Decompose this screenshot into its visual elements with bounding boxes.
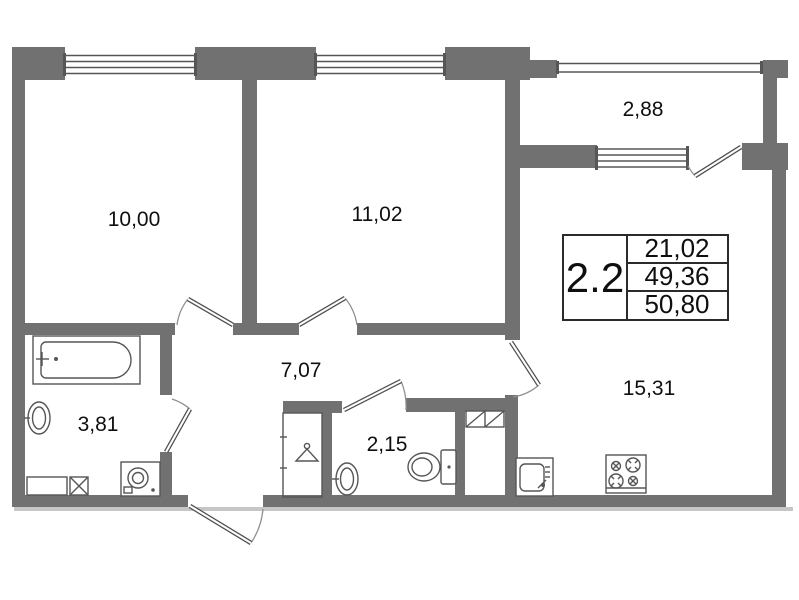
door-entrance — [190, 506, 263, 543]
interroom-wall — [242, 80, 257, 332]
apartment-type-label: 2.2 — [566, 254, 624, 301]
door-bedroom1 — [177, 299, 233, 325]
wardrobe-icon — [280, 413, 322, 497]
floor-plan-drawing: 10,00 11,02 2,88 7,07 3,81 2,15 15,31 2.… — [0, 0, 799, 600]
label-bedroom2-area: 11,02 — [352, 203, 403, 226]
label-balcony-area: 2,88 — [623, 98, 664, 121]
apartment-info-table: 2.2 21,02 49,36 50,80 — [563, 233, 728, 320]
top-pier-right — [445, 47, 530, 80]
window-balcony-door — [595, 146, 689, 170]
top-pier-left — [12, 47, 65, 80]
bathroom-hatch-icon — [70, 477, 88, 495]
balcony-bottom-wall-left — [507, 145, 597, 168]
door-living — [511, 342, 539, 397]
info-row-living-area: 21,02 — [644, 233, 709, 263]
label-wc-area: 2,15 — [367, 433, 408, 456]
vent-shaft-icon — [466, 411, 504, 427]
door-balcony — [688, 147, 741, 176]
kitchen-sink-icon — [516, 458, 553, 496]
right-outer-wall — [772, 170, 786, 507]
door-bathroom — [166, 399, 190, 452]
door-wc — [344, 381, 406, 410]
bathroom-right-wall-lower — [160, 452, 172, 497]
info-row-total-area: 50,80 — [644, 289, 709, 319]
hall-top-wall-c — [357, 323, 505, 335]
label-kitchen-living-area: 15,31 — [623, 377, 676, 400]
wall-shadow — [14, 507, 793, 511]
bathroom-sink-icon — [24, 402, 50, 434]
washing-machine-icon — [121, 462, 160, 496]
bathroom-cabinet-icon — [27, 477, 67, 495]
top-pier-middle — [195, 47, 316, 80]
floor-plan-canvas: 10,00 11,02 2,88 7,07 3,81 2,15 15,31 2.… — [0, 0, 799, 600]
wc-top-wall-left — [283, 401, 342, 413]
label-bedroom1-area: 10,00 — [108, 208, 161, 231]
window-bedroom2 — [314, 53, 446, 76]
toilet-icon — [408, 450, 456, 484]
balcony-corner-top-right — [763, 60, 788, 78]
info-row-apartment-area: 49,36 — [644, 261, 709, 291]
door-bedroom2 — [299, 298, 357, 325]
balcony-bottom-wall-right — [743, 145, 763, 168]
bottom-wall-right — [263, 495, 786, 507]
balcony-rail — [556, 61, 763, 74]
window-bedroom1 — [63, 53, 197, 76]
bathroom-right-wall-upper — [160, 331, 172, 395]
wc-left-wall — [322, 401, 332, 497]
bathtub-icon — [33, 336, 140, 384]
stove-icon — [606, 455, 646, 493]
label-hallway-area: 7,07 — [281, 359, 322, 382]
hall-top-wall-b — [233, 323, 299, 335]
label-bathroom-area: 3,81 — [78, 413, 119, 436]
hall-top-wall-a — [12, 323, 175, 335]
left-outer-wall — [12, 47, 25, 507]
living-left-wall-upper — [505, 77, 520, 340]
balcony-right-wall — [763, 77, 777, 145]
wc-sink-icon — [332, 463, 358, 495]
wc-top-wall-right — [406, 398, 518, 412]
top-pier-right-notch — [528, 60, 557, 78]
